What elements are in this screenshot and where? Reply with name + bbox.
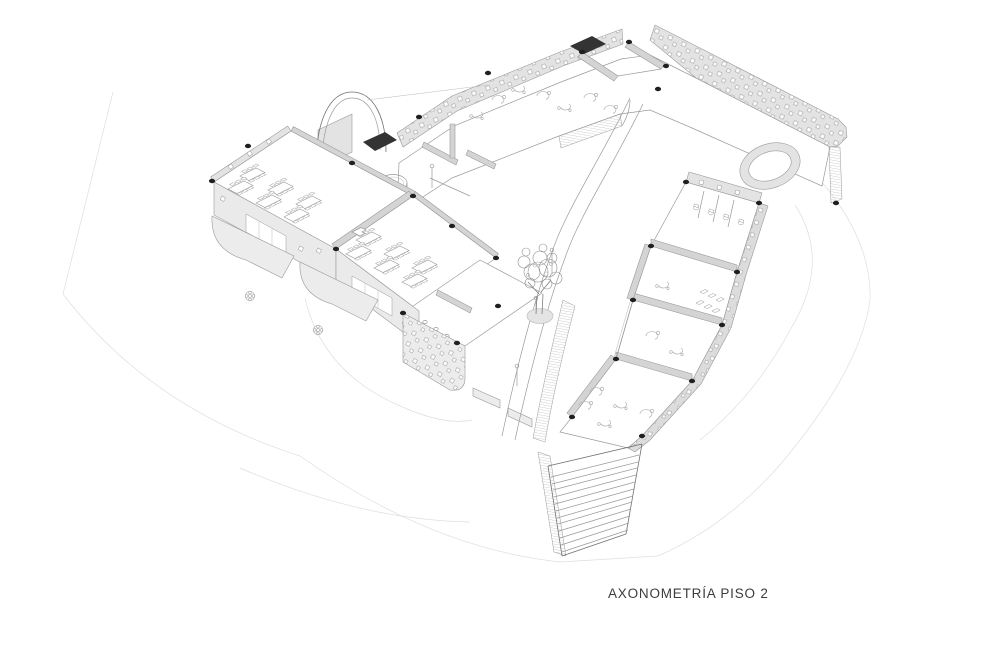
drawing-caption: AXONOMETRÍA PISO 2 <box>608 586 769 601</box>
paper-background <box>0 0 1000 647</box>
drawing-sheet: AXONOMETRÍA PISO 2 <box>0 0 1000 647</box>
axonometric-drawing: AXONOMETRÍA PISO 2 <box>0 0 1000 647</box>
